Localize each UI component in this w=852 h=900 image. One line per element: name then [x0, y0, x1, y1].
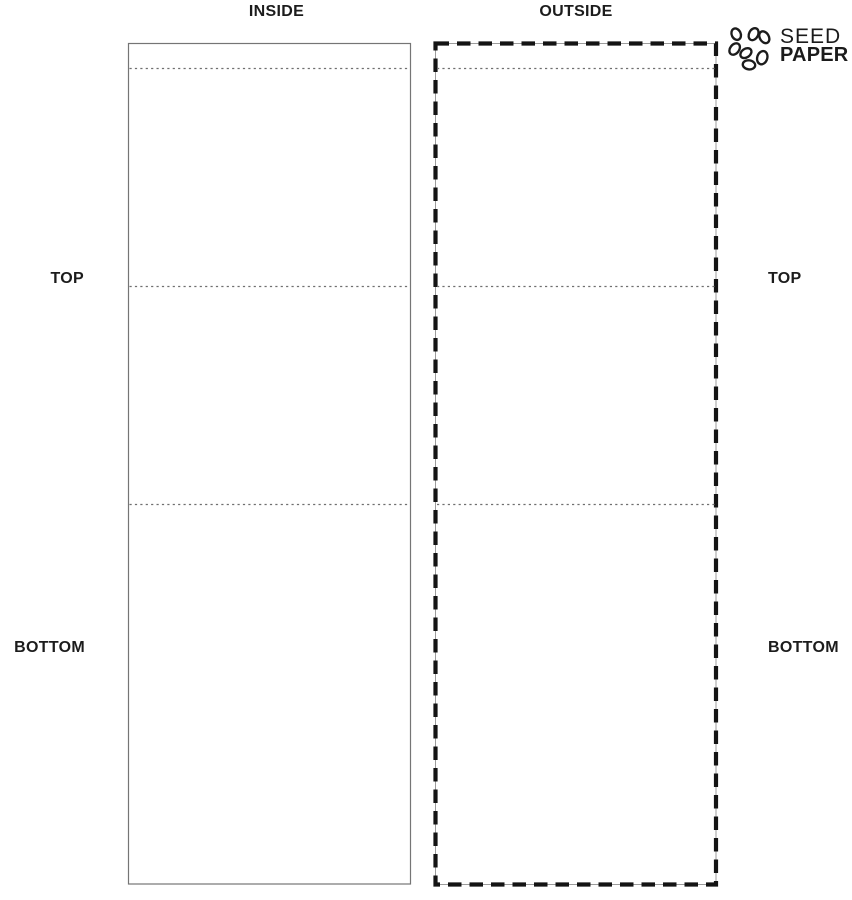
outside-top-label: TOP — [768, 270, 802, 288]
outside-bottom-label: BOTTOM — [768, 639, 839, 657]
inside-panel-outline — [129, 44, 411, 885]
brand-wordmark: SEED PAPER — [780, 27, 848, 65]
inside-panel-title: INSIDE — [135, 3, 418, 21]
brand-logo: SEED PAPER — [727, 26, 848, 72]
outside-panel-thin-outline — [436, 44, 717, 885]
seed-cluster-icon — [727, 26, 773, 72]
outside-panel-title: OUTSIDE — [435, 3, 717, 21]
inside-bottom-label: BOTTOM — [0, 639, 85, 657]
outside-panel-dashed-outline — [436, 44, 717, 885]
inside-top-label: TOP — [0, 270, 84, 288]
dieline-drawing — [0, 0, 852, 900]
template-sheet: INSIDE OUTSIDE TOP BOTTOM TOP BOTTOM SEE… — [0, 0, 852, 900]
brand-name-paper: PAPER — [780, 46, 848, 65]
